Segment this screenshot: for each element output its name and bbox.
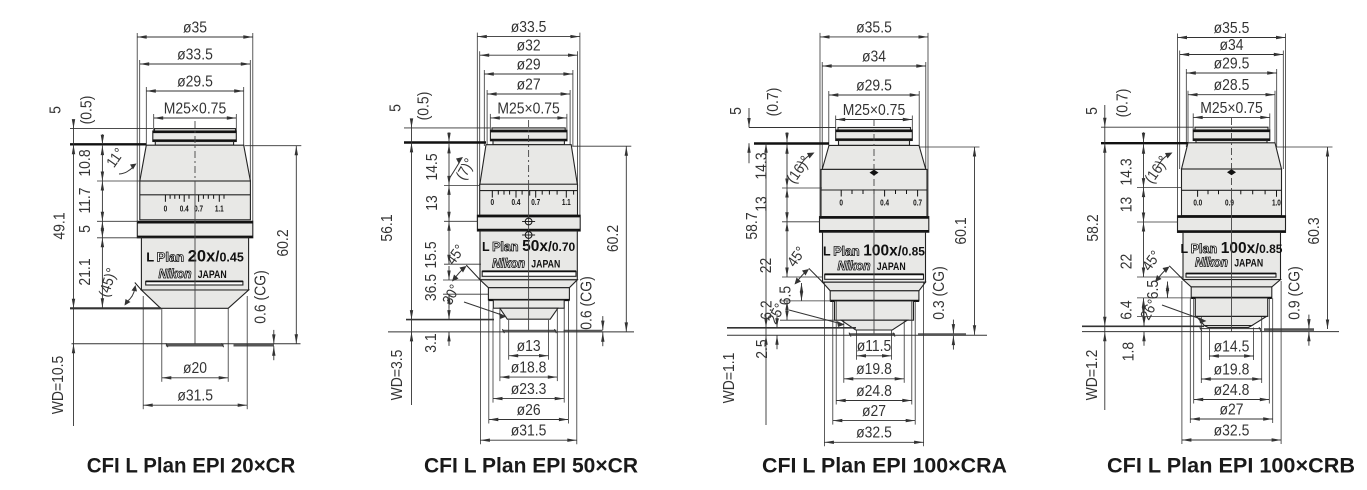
svg-text:ø34: ø34 — [1220, 37, 1244, 54]
svg-text:1.8: 1.8 — [1121, 342, 1138, 361]
svg-text:ø24.8: ø24.8 — [1214, 382, 1250, 399]
svg-text:Nikon: Nikon — [492, 256, 525, 271]
svg-text:0.0: 0.0 — [1193, 199, 1202, 208]
svg-text:ø31.5: ø31.5 — [511, 423, 547, 440]
svg-text:ø19.8: ø19.8 — [1214, 361, 1250, 378]
svg-text:ø33.5: ø33.5 — [511, 19, 547, 36]
svg-text:JAPAN: JAPAN — [198, 269, 227, 281]
svg-text:5: 5 — [48, 106, 65, 114]
svg-text:M25×0.75: M25×0.75 — [497, 100, 559, 117]
svg-text:1.1: 1.1 — [215, 205, 224, 214]
svg-text:WD=1.1: WD=1.1 — [721, 353, 738, 404]
svg-text:JAPAN: JAPAN — [1234, 258, 1263, 270]
svg-text:ø29.5: ø29.5 — [177, 73, 213, 90]
svg-text:6.5: 6.5 — [778, 286, 795, 305]
svg-text:ø11.5: ø11.5 — [857, 338, 892, 355]
svg-text:0.4: 0.4 — [512, 198, 521, 207]
svg-text:Nikon: Nikon — [1195, 255, 1228, 270]
svg-text:ø18.8: ø18.8 — [511, 360, 547, 377]
svg-text:M25×0.75: M25×0.75 — [164, 100, 226, 117]
svg-text:60.2: 60.2 — [605, 225, 622, 252]
svg-text:2.5: 2.5 — [754, 339, 771, 358]
svg-text:Nikon: Nikon — [838, 258, 871, 273]
svg-text:5: 5 — [77, 225, 94, 233]
svg-text:60.2: 60.2 — [275, 229, 292, 256]
svg-text:M25×0.75: M25×0.75 — [1200, 100, 1262, 117]
svg-text:13: 13 — [1119, 197, 1136, 213]
svg-text:ø23.3: ø23.3 — [511, 381, 547, 398]
svg-text:1.0: 1.0 — [1272, 199, 1281, 208]
svg-text:0.9 (CG): 0.9 (CG) — [1287, 266, 1304, 320]
svg-text:0.3 (CG): 0.3 (CG) — [931, 266, 948, 320]
svg-text:5: 5 — [388, 104, 405, 112]
svg-text:JAPAN: JAPAN — [877, 261, 906, 273]
svg-text:ø31.5: ø31.5 — [177, 388, 213, 405]
svg-text:60.1: 60.1 — [953, 217, 970, 244]
svg-text:ø27: ø27 — [1220, 401, 1244, 418]
svg-text:14.3: 14.3 — [1119, 158, 1136, 185]
svg-text:Nikon: Nikon — [159, 266, 192, 281]
svg-text:ø26: ø26 — [517, 402, 541, 419]
svg-text:ø19.8: ø19.8 — [856, 361, 892, 378]
svg-text:ø35: ø35 — [183, 19, 207, 36]
svg-text:ø32: ø32 — [517, 38, 541, 55]
svg-text:0: 0 — [839, 199, 843, 208]
svg-text:0.6 (CG): 0.6 (CG) — [579, 276, 596, 330]
svg-text:5: 5 — [1084, 107, 1101, 115]
svg-text:ø35.5: ø35.5 — [1214, 20, 1250, 37]
svg-text:ø13: ø13 — [517, 338, 541, 355]
svg-text:M25×0.75: M25×0.75 — [843, 102, 905, 119]
svg-text:13: 13 — [754, 196, 771, 212]
svg-text:WD=3.5: WD=3.5 — [389, 350, 406, 401]
svg-text:(0.5): (0.5) — [416, 92, 433, 121]
svg-text:22: 22 — [758, 258, 775, 274]
svg-text:0.7: 0.7 — [531, 198, 540, 207]
svg-text:JAPAN: JAPAN — [531, 259, 560, 271]
svg-text:WD=10.5: WD=10.5 — [50, 356, 67, 415]
svg-text:(0.7): (0.7) — [765, 88, 782, 117]
svg-text:22: 22 — [1119, 254, 1136, 270]
svg-text:56.1: 56.1 — [379, 214, 396, 241]
svg-text:ø34: ø34 — [862, 48, 886, 65]
svg-text:49.1: 49.1 — [52, 212, 69, 239]
svg-text:ø29: ø29 — [517, 56, 541, 73]
svg-text:ø14.5: ø14.5 — [1214, 338, 1250, 355]
svg-text:10.8: 10.8 — [77, 149, 94, 176]
svg-text:CFI L Plan EPI 100×CRB: CFI L Plan EPI 100×CRB — [1107, 455, 1355, 478]
svg-text:0: 0 — [491, 198, 495, 207]
svg-text:(0.7): (0.7) — [1115, 89, 1132, 118]
svg-text:5: 5 — [728, 107, 745, 115]
svg-text:0.4: 0.4 — [880, 199, 889, 208]
svg-text:36.5: 36.5 — [423, 274, 440, 301]
svg-text:ø32.5: ø32.5 — [1214, 422, 1250, 439]
svg-text:CFI L Plan EPI 50×CR: CFI L Plan EPI 50×CR — [424, 455, 638, 478]
svg-text:(0.5): (0.5) — [79, 96, 96, 125]
svg-text:ø20: ø20 — [183, 360, 207, 377]
svg-text:ø35.5: ø35.5 — [856, 19, 892, 36]
svg-text:14.5: 14.5 — [424, 153, 441, 180]
svg-text:6.4: 6.4 — [1119, 300, 1136, 320]
svg-text:58.7: 58.7 — [744, 212, 761, 239]
svg-text:ø29.5: ø29.5 — [1214, 55, 1250, 72]
svg-text:0.7: 0.7 — [194, 205, 203, 214]
svg-text:60.3: 60.3 — [1306, 217, 1323, 244]
svg-text:15.5: 15.5 — [423, 241, 440, 268]
svg-text:CFI L Plan EPI 100×CRA: CFI L Plan EPI 100×CRA — [762, 455, 1007, 478]
svg-text:ø28.5: ø28.5 — [1214, 77, 1250, 94]
svg-text:0.7: 0.7 — [913, 199, 922, 208]
svg-text:6.5: 6.5 — [1145, 280, 1162, 299]
svg-text:0.9: 0.9 — [1225, 199, 1234, 208]
svg-text:58.2: 58.2 — [1085, 214, 1102, 241]
svg-text:0: 0 — [164, 205, 168, 214]
svg-text:ø32.5: ø32.5 — [856, 425, 892, 442]
svg-text:ø29.5: ø29.5 — [856, 77, 892, 94]
svg-text:0.4: 0.4 — [180, 205, 189, 214]
svg-text:ø27: ø27 — [862, 403, 886, 420]
svg-text:13: 13 — [424, 195, 441, 211]
svg-text:ø24.8: ø24.8 — [856, 383, 892, 400]
svg-text:14.3: 14.3 — [754, 152, 771, 179]
svg-text:11.7: 11.7 — [77, 187, 94, 213]
svg-text:ø33.5: ø33.5 — [177, 46, 213, 63]
svg-text:ø27: ø27 — [517, 76, 541, 93]
svg-text:0.6 (CG): 0.6 (CG) — [253, 270, 270, 324]
svg-text:WD=1.2: WD=1.2 — [1084, 350, 1101, 401]
svg-text:CFI L Plan EPI 20×CR: CFI L Plan EPI 20×CR — [87, 455, 296, 478]
svg-text:21.1: 21.1 — [77, 258, 94, 285]
svg-text:3.1: 3.1 — [423, 333, 440, 352]
svg-text:1.1: 1.1 — [562, 198, 571, 207]
